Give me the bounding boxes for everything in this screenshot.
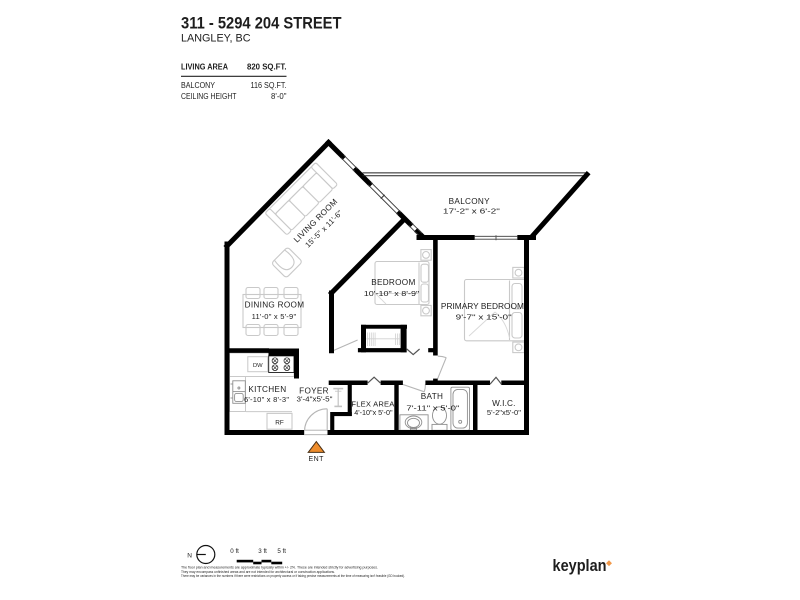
svg-text:5'-2"x5'-0": 5'-2"x5'-0" <box>487 408 521 417</box>
svg-text:116 SQ.FT.: 116 SQ.FT. <box>251 81 287 90</box>
svg-text:There may be variances in the: There may be variances in the numbers if… <box>181 574 405 578</box>
svg-text:PRIMARY BEDROOM: PRIMARY BEDROOM <box>441 302 524 311</box>
svg-text:DINING ROOM: DINING ROOM <box>245 301 305 310</box>
svg-text:BATH: BATH <box>421 392 443 401</box>
svg-text:3 ft: 3 ft <box>258 548 267 555</box>
svg-text:7'-11" x 5'-0": 7'-11" x 5'-0" <box>406 404 459 413</box>
svg-text:17'-2" x 6'-2": 17'-2" x 6'-2" <box>443 207 500 216</box>
svg-text:KITCHEN: KITCHEN <box>248 385 286 394</box>
svg-text:RF: RF <box>275 420 284 427</box>
svg-text:LIVING AREA: LIVING AREA <box>181 63 228 72</box>
svg-text:820 SQ.FT.: 820 SQ.FT. <box>247 63 287 72</box>
svg-text:6'-10" x 8'-3": 6'-10" x 8'-3" <box>244 395 289 404</box>
svg-text:9'-7" x 15'-0": 9'-7" x 15'-0" <box>456 313 512 322</box>
svg-text:DW: DW <box>253 363 263 369</box>
svg-text:311 - 5294 204 STREET: 311 - 5294 204 STREET <box>181 13 342 32</box>
svg-text:11'-0" x 5'-9": 11'-0" x 5'-9" <box>252 312 297 321</box>
svg-text:W.I.C.: W.I.C. <box>492 399 516 408</box>
svg-text:8'-0": 8'-0" <box>271 92 287 101</box>
svg-text:4'-10"x 5'-0": 4'-10"x 5'-0" <box>354 408 393 417</box>
svg-text:BALCONY: BALCONY <box>181 81 216 90</box>
svg-text:ENT: ENT <box>308 456 324 463</box>
svg-text:LANGLEY, BC: LANGLEY, BC <box>181 33 251 45</box>
svg-text:N: N <box>187 552 192 559</box>
svg-text:0 ft: 0 ft <box>230 548 239 555</box>
svg-text:BEDROOM: BEDROOM <box>371 278 415 287</box>
svg-text:keyplan: keyplan <box>553 557 607 575</box>
svg-text:5 ft: 5 ft <box>277 548 286 555</box>
svg-text:3'-4"x5'-5": 3'-4"x5'-5" <box>297 395 333 404</box>
svg-text:10'-10" x 8'-9": 10'-10" x 8'-9" <box>364 289 420 298</box>
svg-text:BALCONY: BALCONY <box>449 197 490 206</box>
svg-text:CEILING HEIGHT: CEILING HEIGHT <box>181 92 237 101</box>
